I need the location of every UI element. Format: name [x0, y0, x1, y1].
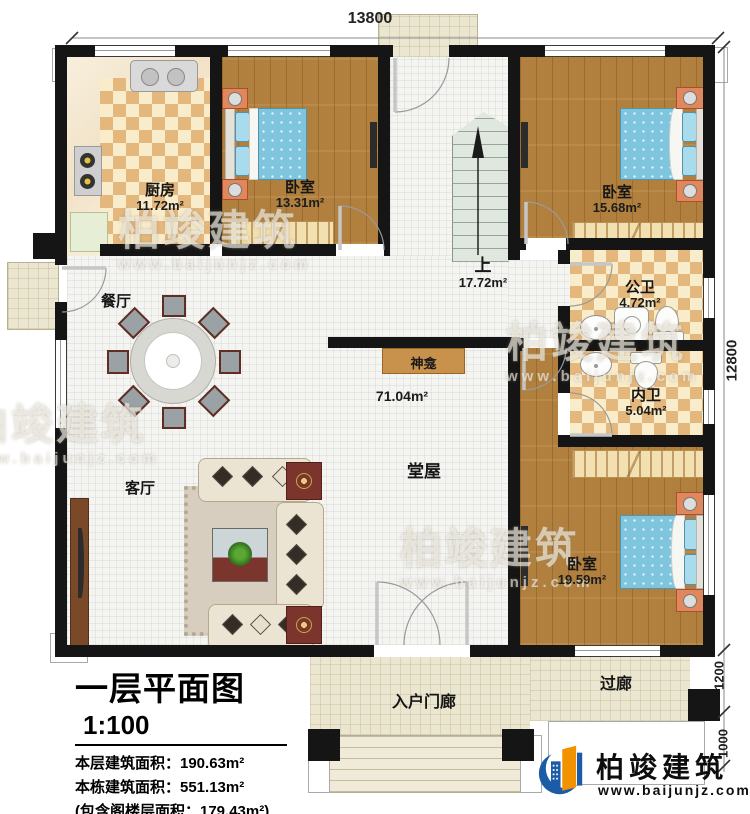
wall — [449, 45, 545, 57]
bedroom3-label: 卧室19.59m² — [536, 556, 628, 588]
wall — [55, 645, 374, 657]
bedroom2-window — [545, 45, 665, 57]
info-line: 本栋建筑面积：551.13m² — [75, 776, 315, 797]
title-block: 一层平面图 1:100 本层建筑面积：190.63m² 本栋建筑面积：551.1… — [75, 662, 315, 814]
wall — [328, 337, 510, 348]
stairs-label: 上17.72m² — [440, 256, 526, 290]
info-line: (包含阁楼层面积：179.43m²) — [75, 800, 315, 814]
wall — [520, 238, 526, 250]
side-entry-pad — [7, 262, 59, 330]
logo-url: www.baijunjz.com — [598, 782, 750, 798]
living-label: 客厅 — [108, 480, 172, 497]
bedroom3-nightstand-bottom — [676, 589, 704, 612]
bedroom1-nightstand-bottom — [222, 179, 248, 200]
floor-plan-canvas: 神龛 — [0, 0, 750, 814]
info-line: 本层建筑面积：190.63m² — [75, 752, 315, 773]
bedroom2-tv — [521, 122, 528, 168]
wall — [384, 244, 390, 256]
bedroom1-bed — [225, 108, 305, 178]
living-side-table-top — [286, 462, 322, 500]
wall — [520, 338, 524, 351]
dim-right-main: 12800 — [724, 331, 741, 391]
living-side-table-bottom — [286, 606, 322, 644]
entry-porch-label: 入户门廊 — [374, 688, 474, 712]
entry-steps — [328, 735, 522, 793]
private-bath-toilet — [630, 352, 660, 388]
bedroom3-bottom-window — [575, 645, 660, 657]
wall — [378, 57, 390, 244]
bedroom3-nightstand-top — [676, 492, 704, 515]
living-sofa-right — [276, 502, 324, 610]
dining-chair — [162, 407, 186, 429]
shrine-label: 神龛 — [383, 353, 464, 372]
shrine-shelf: 神龛 — [382, 348, 465, 374]
bedroom2-bed — [620, 108, 703, 178]
private-bath-basin — [580, 352, 612, 377]
wall — [175, 45, 228, 57]
bedroom1-tv — [370, 122, 377, 168]
porch-column-right — [502, 729, 534, 761]
bedroom3-tv — [521, 526, 528, 586]
wall — [558, 435, 715, 447]
private-bath-label: 内卫5.04m² — [606, 387, 686, 419]
dining-window — [55, 340, 67, 428]
dining-chair — [107, 350, 129, 374]
kitchen-window — [95, 45, 175, 57]
dining-label: 餐厅 — [84, 293, 148, 310]
wall — [508, 337, 520, 645]
bedroom3-corridor-floor — [520, 348, 558, 447]
hall-label: 堂屋 — [388, 462, 460, 482]
wall — [100, 244, 210, 256]
public-bath-shower — [614, 307, 649, 342]
kitchen-sink — [130, 60, 198, 92]
public-bath-toilet — [652, 306, 682, 342]
wall — [566, 238, 715, 250]
bedroom3-wardrobe — [572, 450, 704, 478]
bedroom3-bed — [620, 515, 703, 587]
bedroom2-nightstand-top — [676, 87, 704, 109]
wall — [660, 645, 715, 657]
bedroom2-label: 卧室15.68m² — [572, 184, 662, 216]
wall — [55, 45, 67, 265]
bedroom1-label: 卧室13.31m² — [255, 179, 345, 211]
company-logo: 柏竣建筑 www.baijunjz.com — [538, 740, 743, 802]
kitchen-stove — [74, 146, 102, 196]
wall — [508, 57, 520, 260]
wall — [558, 340, 715, 351]
bedroom1-window — [228, 45, 330, 57]
wall — [55, 302, 67, 340]
living-tv — [78, 528, 84, 598]
wall — [55, 428, 67, 657]
dining-chair — [162, 295, 186, 317]
hall-area-label: 71.04m² — [362, 388, 442, 404]
kitchen-rug — [100, 78, 210, 250]
wall — [222, 244, 336, 256]
public-bath-label: 公卫4.72m² — [600, 279, 680, 311]
logo-icon — [538, 742, 590, 798]
private-bath-window — [703, 390, 715, 424]
dining-chair — [219, 350, 241, 374]
dining-table — [130, 318, 216, 404]
corridor-label: 过廊 — [584, 670, 648, 694]
bedroom1-nightstand-top — [222, 88, 248, 109]
wall — [703, 318, 715, 390]
wall — [210, 57, 222, 244]
plant — [228, 542, 252, 566]
public-bath-window — [703, 278, 715, 318]
bedroom2-nightstand-bottom — [676, 180, 704, 202]
dim-right-corridor: 1200 — [712, 651, 727, 701]
kitchen-label: 厨房11.72m² — [110, 182, 210, 214]
plan-title: 一层平面图 — [75, 670, 245, 707]
living-coffee-table — [212, 528, 268, 582]
wall — [558, 250, 570, 264]
logo-text: 柏竣建筑 — [596, 746, 728, 786]
bedroom3-side-window — [703, 495, 715, 595]
staircase — [452, 112, 509, 262]
wall — [470, 645, 575, 657]
wall — [330, 45, 393, 57]
wall — [33, 233, 59, 259]
dim-top: 13800 — [335, 10, 405, 28]
plan-scale: 1:100 — [83, 710, 150, 740]
title-underline — [75, 744, 287, 746]
public-bath-basin — [580, 315, 612, 340]
